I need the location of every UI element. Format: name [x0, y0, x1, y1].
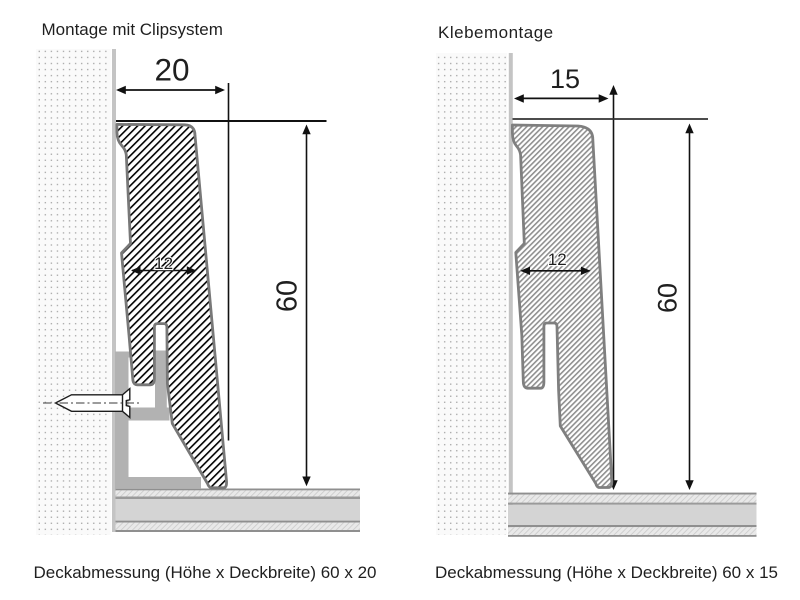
svg-text:20: 20 — [154, 52, 189, 88]
svg-text:Montage mit Clipsystem: Montage mit Clipsystem — [42, 20, 223, 39]
svg-text:12: 12 — [154, 254, 173, 273]
svg-text:Klebemontage: Klebemontage — [438, 23, 554, 42]
svg-text:Deckabmessung (Höhe x Deckbrei: Deckabmessung (Höhe x Deckbreite) 60 x 1… — [435, 563, 778, 582]
svg-text:60: 60 — [652, 283, 682, 313]
svg-text:Deckabmessung (Höhe x Deckbrei: Deckabmessung (Höhe x Deckbreite) 60 x 2… — [34, 563, 377, 582]
svg-text:12: 12 — [548, 250, 567, 269]
svg-text:15: 15 — [550, 64, 580, 94]
svg-text:60: 60 — [272, 280, 304, 312]
